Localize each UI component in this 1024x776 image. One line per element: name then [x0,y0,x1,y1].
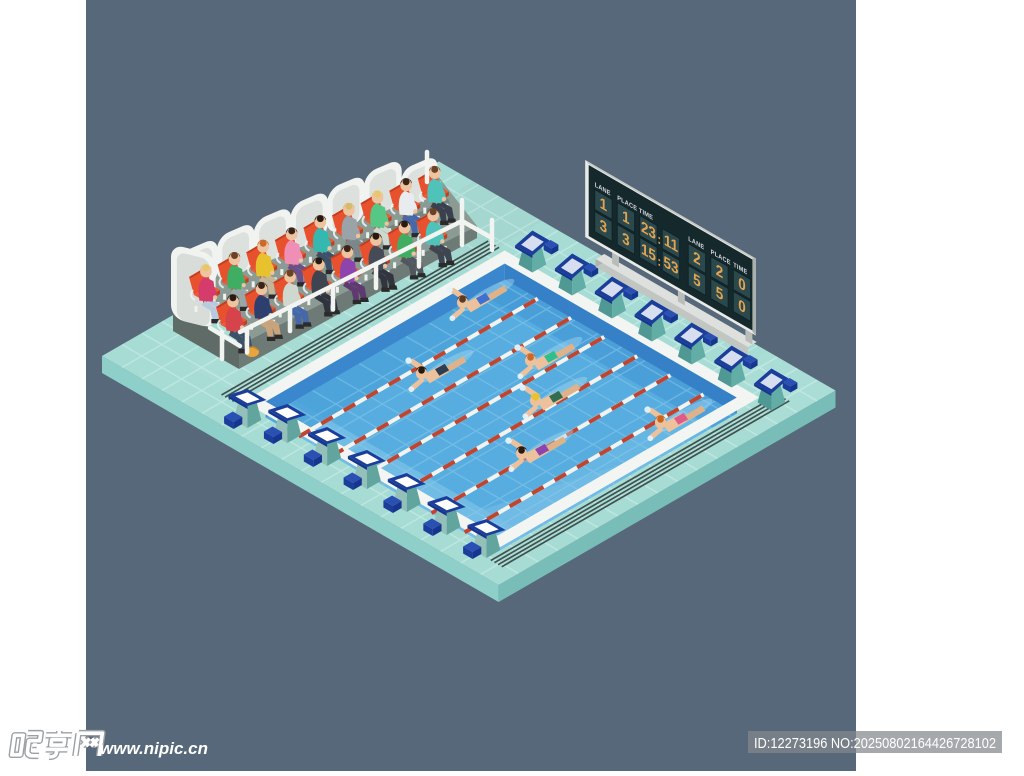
svg-text::: : [657,231,661,248]
svg-text:www.nipic.cn: www.nipic.cn [100,739,208,758]
svg-text::: : [657,253,661,270]
svg-text:ID:12273196 NO:202508021644267: ID:12273196 NO:20250802164426728102 [754,735,996,752]
